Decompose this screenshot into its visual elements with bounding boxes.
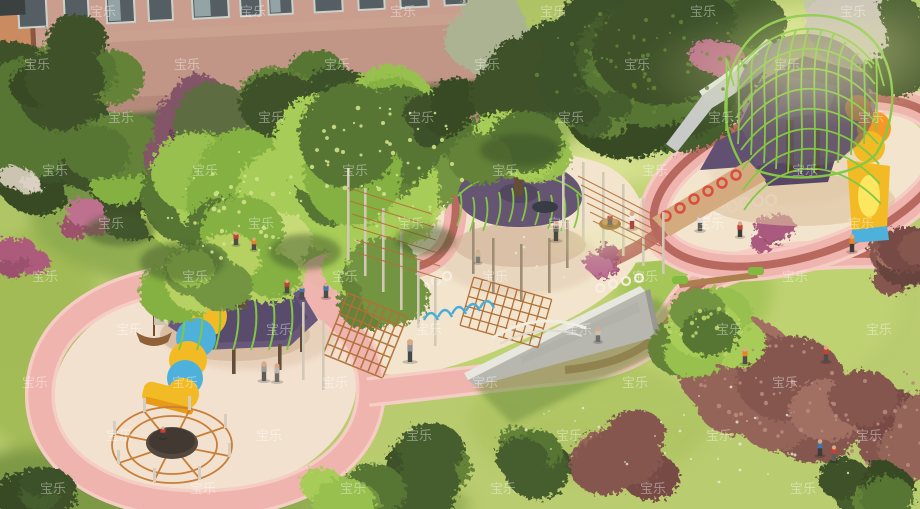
svg-text:宝乐: 宝乐: [98, 216, 124, 231]
svg-text:宝乐: 宝乐: [22, 375, 48, 390]
svg-text:宝乐: 宝乐: [182, 269, 208, 284]
svg-text:宝乐: 宝乐: [256, 428, 282, 443]
svg-text:宝乐: 宝乐: [474, 57, 500, 72]
svg-text:宝乐: 宝乐: [772, 375, 798, 390]
svg-text:宝乐: 宝乐: [192, 163, 218, 178]
svg-text:宝乐: 宝乐: [558, 110, 584, 125]
svg-text:宝乐: 宝乐: [24, 57, 50, 72]
svg-text:宝乐: 宝乐: [640, 481, 666, 496]
svg-text:宝乐: 宝乐: [324, 57, 350, 72]
svg-text:宝乐: 宝乐: [472, 375, 498, 390]
svg-text:宝乐: 宝乐: [340, 481, 366, 496]
svg-text:宝乐: 宝乐: [566, 322, 592, 337]
svg-text:宝乐: 宝乐: [108, 110, 134, 125]
svg-text:宝乐: 宝乐: [716, 322, 742, 337]
svg-text:宝乐: 宝乐: [390, 4, 416, 19]
svg-text:宝乐: 宝乐: [172, 375, 198, 390]
svg-text:宝乐: 宝乐: [490, 481, 516, 496]
svg-text:宝乐: 宝乐: [706, 428, 732, 443]
svg-text:宝乐: 宝乐: [642, 163, 668, 178]
svg-text:宝乐: 宝乐: [190, 481, 216, 496]
svg-text:宝乐: 宝乐: [90, 4, 116, 19]
svg-text:宝乐: 宝乐: [482, 269, 508, 284]
svg-text:宝乐: 宝乐: [698, 216, 724, 231]
svg-text:宝乐: 宝乐: [258, 110, 284, 125]
svg-text:宝乐: 宝乐: [848, 216, 874, 231]
svg-text:宝乐: 宝乐: [266, 322, 292, 337]
svg-text:宝乐: 宝乐: [556, 428, 582, 443]
svg-text:宝乐: 宝乐: [492, 163, 518, 178]
svg-text:宝乐: 宝乐: [632, 269, 658, 284]
svg-text:宝乐: 宝乐: [416, 322, 442, 337]
svg-text:宝乐: 宝乐: [322, 375, 348, 390]
svg-text:宝乐: 宝乐: [540, 4, 566, 19]
svg-text:宝乐: 宝乐: [32, 269, 58, 284]
svg-text:宝乐: 宝乐: [332, 269, 358, 284]
svg-text:宝乐: 宝乐: [856, 428, 882, 443]
svg-text:宝乐: 宝乐: [174, 57, 200, 72]
svg-text:宝乐: 宝乐: [106, 428, 132, 443]
svg-text:宝乐: 宝乐: [622, 375, 648, 390]
svg-text:宝乐: 宝乐: [342, 163, 368, 178]
svg-text:宝乐: 宝乐: [790, 481, 816, 496]
svg-text:宝乐: 宝乐: [42, 163, 68, 178]
svg-text:宝乐: 宝乐: [792, 163, 818, 178]
svg-text:宝乐: 宝乐: [408, 110, 434, 125]
svg-text:宝乐: 宝乐: [40, 481, 66, 496]
svg-text:宝乐: 宝乐: [866, 322, 892, 337]
svg-text:宝乐: 宝乐: [248, 216, 274, 231]
svg-text:宝乐: 宝乐: [240, 4, 266, 19]
svg-text:宝乐: 宝乐: [406, 428, 432, 443]
svg-text:宝乐: 宝乐: [782, 269, 808, 284]
svg-text:宝乐: 宝乐: [398, 216, 424, 231]
svg-text:宝乐: 宝乐: [116, 322, 142, 337]
